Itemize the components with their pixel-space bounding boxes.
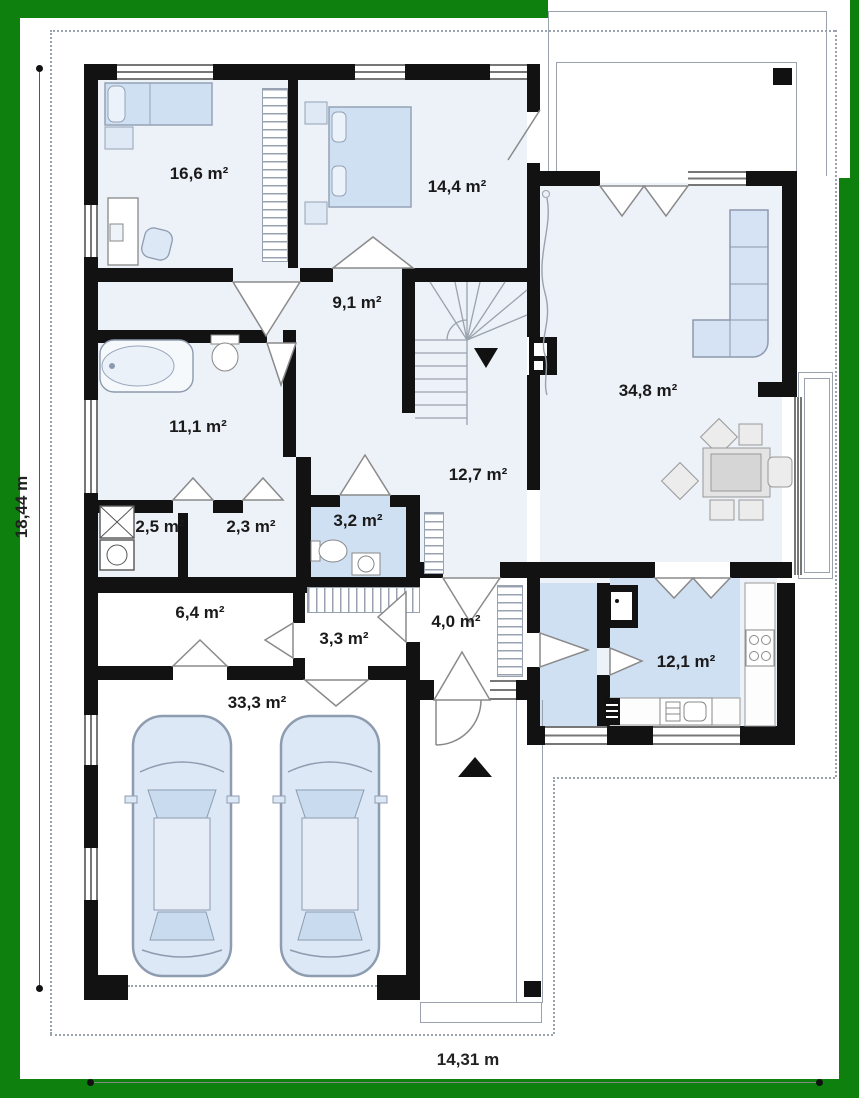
car [273, 716, 387, 976]
desk [108, 198, 174, 265]
chimney-detail [611, 592, 632, 620]
furniture-layer [0, 0, 859, 1098]
car [125, 716, 239, 976]
room-label-bedroom-2: 14,4 m² [428, 177, 487, 197]
staircase [415, 282, 527, 425]
room-label-hall-small: 3,3 m² [319, 629, 368, 649]
room-label-hall-main: 12,7 m² [449, 465, 508, 485]
entrance-arrow [458, 757, 492, 777]
room-label-wc: 3,2 m² [333, 511, 382, 531]
sink [352, 553, 380, 575]
bed [105, 83, 212, 149]
dining-set [662, 419, 792, 520]
dimension-dot [87, 1079, 94, 1086]
room-label-kitchen: 12,1 m² [657, 652, 716, 672]
room-label-living: 34,8 m² [619, 381, 678, 401]
room-label-vestibule: 4,0 m² [431, 612, 480, 632]
washing-machine [100, 506, 134, 570]
dimension-line-height [39, 68, 40, 989]
dimension-height-label: 18,44 m [12, 476, 32, 538]
door-arc [436, 110, 540, 745]
mudroom-radiator [604, 698, 620, 725]
toilet [311, 540, 347, 562]
dimension-dot [36, 65, 43, 72]
room-label-storage: 2,3 m² [226, 517, 275, 537]
sofa [693, 210, 768, 357]
room-label-bathroom: 11,1 m² [169, 417, 227, 437]
toilet [211, 335, 239, 371]
floor-plan: 16,6 m² 14,4 m² 9,1 m² 34,8 m² 11,1 m² 1… [0, 0, 859, 1098]
room-label-bedroom-1: 16,6 m² [170, 164, 229, 184]
plant-squiggle-dot [543, 191, 550, 198]
room-label-corridor: 6,4 m² [175, 603, 224, 623]
dimension-dot [36, 985, 43, 992]
dimension-width-label: 14,31 m [437, 1050, 499, 1070]
room-label-hall-upper: 9,1 m² [332, 293, 381, 313]
room-label-garage: 33,3 m² [228, 693, 287, 713]
dimension-line-width [90, 1082, 820, 1083]
dimension-dot [816, 1079, 823, 1086]
room-label-laundry: 2,5 m² [135, 517, 184, 537]
bed [305, 102, 411, 224]
bathtub [100, 340, 193, 392]
